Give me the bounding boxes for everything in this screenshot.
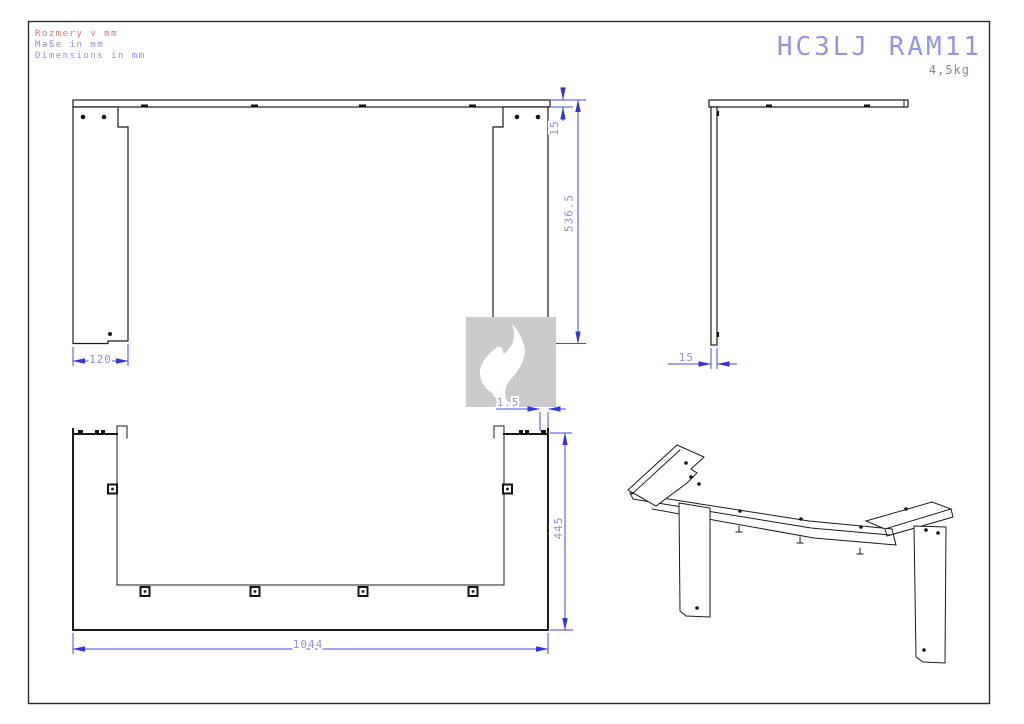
clip-fastener	[251, 587, 260, 596]
side-view-dimensions: 15	[668, 348, 737, 369]
bottom-left-bracket	[117, 426, 127, 438]
bolt-dot	[689, 475, 693, 479]
clip-symbol	[736, 526, 742, 532]
note-line-en: Dimensions in mm	[35, 51, 146, 61]
tab-mark	[525, 430, 529, 434]
hole-mark	[536, 115, 541, 120]
watermark	[466, 317, 556, 407]
front-right-leg	[493, 107, 548, 344]
bolt-dot	[695, 606, 699, 610]
hole-mark	[515, 115, 520, 120]
hole-mark	[108, 332, 112, 336]
front-view	[73, 100, 550, 344]
slot-mark	[717, 111, 720, 116]
extension-line	[711, 348, 717, 369]
drawing-sheet: Rozmery v mm Maße in mm Dimensions in mm…	[0, 0, 1024, 724]
bolt-dot	[924, 528, 928, 532]
side-leg-panel	[711, 107, 717, 345]
tab-mark	[101, 430, 105, 434]
iso-rail-ends	[630, 493, 896, 545]
weight-label: 4,5kg	[929, 63, 970, 77]
iso-right-leg	[914, 526, 946, 663]
tab-mark	[541, 430, 546, 434]
slot-mark	[864, 105, 870, 108]
extension-line	[540, 412, 548, 431]
dim-side-panel-thickness: 15	[679, 351, 694, 364]
dim-bottom-overall-width: 1044	[293, 638, 324, 651]
iso-rail-top-edge	[630, 493, 892, 529]
clip-fastener	[503, 485, 512, 494]
model-title: HC3LJ RAM11	[777, 32, 982, 62]
bolt-dot	[859, 525, 863, 529]
bolt-dot	[799, 517, 803, 521]
iso-right-plate	[866, 502, 951, 529]
iso-left-plate	[628, 445, 704, 506]
bottom-inner-outline	[117, 434, 504, 585]
title-block: HC3LJ RAM11 4,5kg	[777, 32, 982, 77]
slot-mark	[717, 332, 720, 337]
tab-mark	[519, 430, 523, 434]
rail-slot-mark	[251, 105, 258, 108]
iso-left-leg	[679, 503, 710, 617]
bolt-dot	[684, 461, 688, 465]
clip-fastener	[141, 587, 150, 596]
slot-mark	[766, 105, 772, 108]
clip-fastener	[108, 485, 117, 494]
dim-bottom-depth: 445	[552, 517, 565, 540]
bottom-outer-outline	[73, 429, 548, 630]
technical-drawing-canvas: Rozmery v mm Maße in mm Dimensions in mm…	[0, 0, 1024, 724]
clip-fastener	[469, 587, 478, 596]
hole-mark	[81, 115, 86, 120]
side-view	[709, 100, 908, 345]
note-line-cz: Rozmery v mm	[35, 29, 118, 39]
tab-mark	[78, 430, 83, 434]
tab-mark	[95, 430, 99, 434]
bolt-dot	[922, 648, 926, 652]
isometric-view	[628, 445, 953, 663]
bottom-view	[73, 426, 548, 630]
rail-slot-mark	[359, 105, 366, 108]
dim-front-rail-height: 15	[548, 120, 561, 135]
dim-front-total-height: 536.5	[563, 194, 576, 232]
bottom-view-dimensions: 1.5 445 1044	[73, 396, 573, 654]
bolt-dot	[904, 507, 908, 511]
bolt-dot	[697, 482, 701, 486]
note-line-de: Maße in mm	[35, 40, 104, 50]
dim-front-left-leg-width: 120	[89, 353, 112, 366]
bolt-dot	[738, 509, 742, 513]
units-notes: Rozmery v mm Maße in mm Dimensions in mm	[35, 29, 146, 61]
rail-slot-mark	[469, 105, 476, 108]
hole-mark	[102, 115, 107, 120]
clip-symbol	[857, 548, 863, 554]
clip-symbol	[797, 537, 803, 543]
rail-slot-mark	[141, 105, 148, 108]
bolt-dot	[936, 531, 940, 535]
dim-bottom-edge-offset: 1.5	[497, 396, 520, 409]
clip-fastener	[359, 587, 368, 596]
front-left-leg	[73, 107, 128, 344]
side-top-plate	[709, 100, 908, 107]
bottom-right-bracket	[494, 426, 504, 438]
iso-rail-front-edge	[633, 499, 890, 535]
